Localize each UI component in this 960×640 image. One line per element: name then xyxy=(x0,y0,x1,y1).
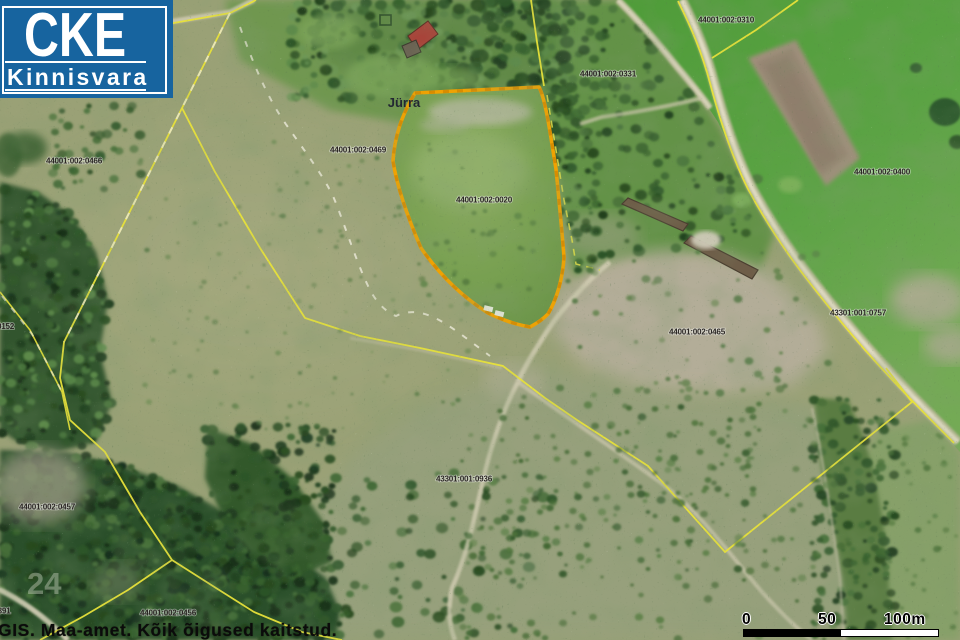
svg-text:Jürra: Jürra xyxy=(388,95,421,110)
svg-text:43301:001:0936: 43301:001:0936 xyxy=(436,475,493,484)
svg-text:44001:002:0465: 44001:002:0465 xyxy=(669,328,726,337)
svg-text:391: 391 xyxy=(0,607,11,616)
svg-text:44001:002:0456: 44001:002:0456 xyxy=(140,609,197,618)
svg-text:43301:001:0757: 43301:001:0757 xyxy=(830,309,887,318)
svg-text:44001:002:0469: 44001:002:0469 xyxy=(330,146,387,155)
svg-text:44001:002:0457: 44001:002:0457 xyxy=(19,503,76,512)
svg-text:44001:002:0331: 44001:002:0331 xyxy=(580,70,637,79)
svg-text:0152: 0152 xyxy=(0,322,15,331)
svg-text:44001:002:0310: 44001:002:0310 xyxy=(698,16,755,25)
svg-text:44001:002:0400: 44001:002:0400 xyxy=(854,168,911,177)
svg-text:44001:002:0466: 44001:002:0466 xyxy=(46,157,103,166)
svg-text:44001:002:0020: 44001:002:0020 xyxy=(456,196,513,205)
